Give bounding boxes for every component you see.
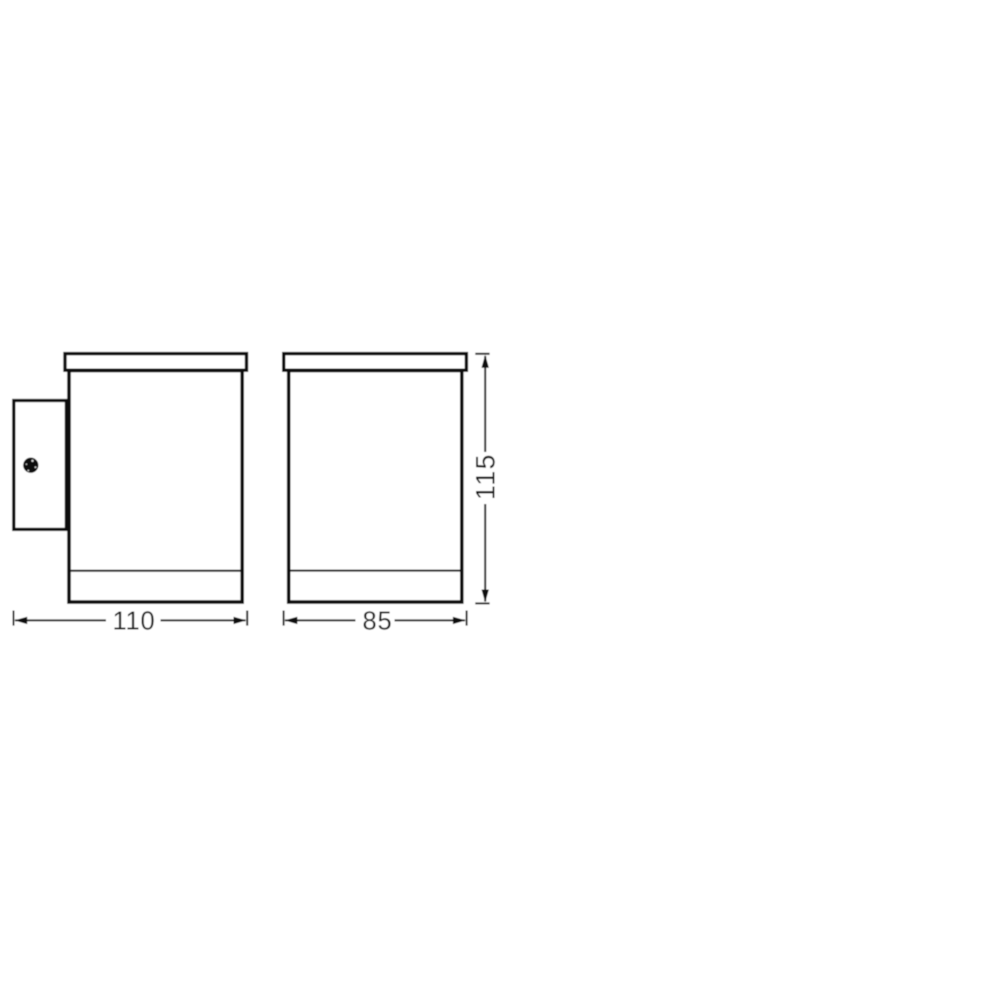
svg-text:115: 115 (471, 453, 501, 500)
svg-text:85: 85 (363, 608, 393, 636)
svg-text:110: 110 (112, 608, 155, 636)
